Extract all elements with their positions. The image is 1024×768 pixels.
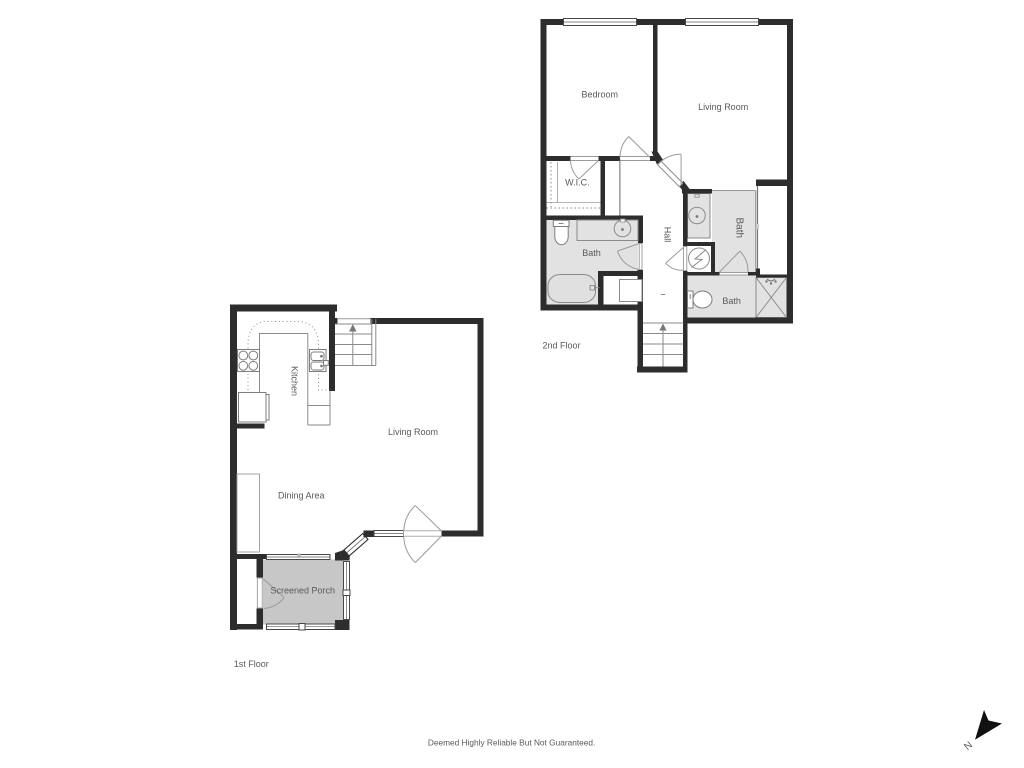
svg-text:Bath: Bath [733, 218, 744, 239]
svg-text:Hall: Hall [663, 227, 673, 243]
svg-text:1st Floor: 1st Floor [234, 659, 269, 669]
svg-text:Bedroom: Bedroom [582, 89, 619, 99]
svg-text:Dining Area: Dining Area [278, 490, 325, 500]
svg-text:Deemed Highly Reliable But Not: Deemed Highly Reliable But Not Guarantee… [428, 737, 595, 747]
svg-text:Living Room: Living Room [388, 427, 438, 437]
svg-text:Screened Porch: Screened Porch [271, 586, 336, 596]
svg-text:Kitchen: Kitchen [289, 366, 299, 396]
svg-text:N: N [962, 740, 975, 753]
svg-text:Bath: Bath [722, 296, 741, 306]
svg-text:2nd Floor: 2nd Floor [543, 340, 581, 350]
svg-text:W.I.C.: W.I.C. [565, 177, 590, 187]
svg-text:Living Room: Living Room [698, 102, 748, 112]
svg-text:Bath: Bath [582, 248, 601, 258]
